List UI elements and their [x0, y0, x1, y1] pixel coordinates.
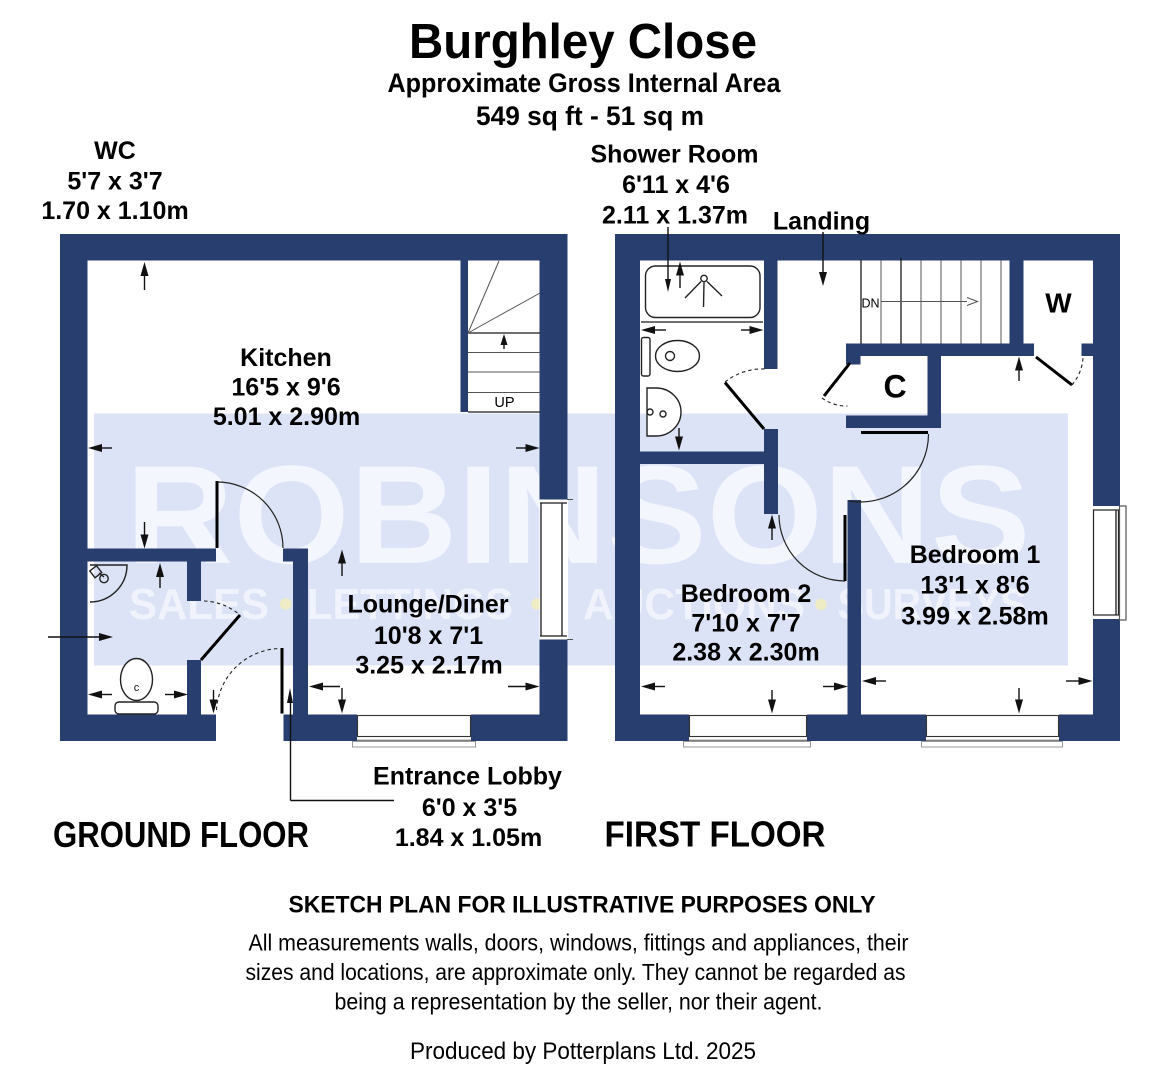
svg-text:3.99 x 2.58m: 3.99 x 2.58m — [901, 603, 1048, 631]
svg-text:GROUND FLOOR: GROUND FLOOR — [53, 814, 309, 855]
svg-text:Entrance Lobby: Entrance Lobby — [373, 763, 562, 791]
svg-text:1.70 x 1.10m: 1.70 x 1.10m — [41, 197, 188, 225]
svg-text:c: c — [134, 682, 140, 694]
svg-text:7'10 x 7'7: 7'10 x 7'7 — [691, 610, 800, 638]
svg-text:2.11 x 1.37m: 2.11 x 1.37m — [602, 202, 748, 230]
svg-text:being a representation by the: being a representation by the seller, no… — [335, 989, 823, 1015]
svg-text:FIRST FLOOR: FIRST FLOOR — [605, 814, 826, 855]
svg-text:Burghley Close: Burghley Close — [409, 15, 757, 69]
svg-text:1.84 x 1.05m: 1.84 x 1.05m — [395, 824, 542, 852]
svg-text:Landing: Landing — [773, 208, 870, 236]
svg-text:6'11 x 4'6: 6'11 x 4'6 — [622, 171, 730, 199]
svg-text:10'8 x 7'1: 10'8 x 7'1 — [374, 622, 483, 650]
svg-text:UP: UP — [494, 395, 514, 411]
svg-text:ROBINSONS: ROBINSONS — [126, 436, 1031, 593]
svg-text:3.25 x 2.17m: 3.25 x 2.17m — [355, 652, 502, 680]
svg-text:All measurements walls, doors,: All measurements walls, doors, windows, … — [249, 930, 909, 956]
svg-text:13'1 x 8'6: 13'1 x 8'6 — [920, 572, 1029, 600]
svg-text:6'0 x 3'5: 6'0 x 3'5 — [422, 794, 517, 822]
svg-text:5'7 x 3'7: 5'7 x 3'7 — [67, 168, 162, 196]
svg-text:5.01 x 2.90m: 5.01 x 2.90m — [213, 403, 360, 431]
svg-text:Produced by Potterplans Ltd. 2: Produced by Potterplans Ltd. 2025 — [410, 1038, 756, 1065]
svg-text:Approximate Gross Internal Are: Approximate Gross Internal Area — [388, 68, 782, 98]
svg-text:Kitchen: Kitchen — [240, 344, 332, 372]
svg-text:DN: DN — [862, 297, 880, 311]
svg-text:W: W — [1045, 288, 1072, 319]
svg-text:2.38 x 2.30m: 2.38 x 2.30m — [672, 639, 819, 667]
svg-text:Bedroom 2: Bedroom 2 — [681, 580, 812, 608]
svg-text:16'5 x 9'6: 16'5 x 9'6 — [231, 374, 340, 402]
svg-text:Lounge/Diner: Lounge/Diner — [347, 591, 508, 619]
svg-text:WC: WC — [94, 137, 136, 165]
svg-text:Bedroom 1: Bedroom 1 — [910, 541, 1041, 569]
svg-text:C: C — [883, 369, 906, 405]
svg-text:Shower Room: Shower Room — [590, 141, 758, 169]
svg-text:sizes and locations, are appro: sizes and locations, are approximate onl… — [246, 959, 906, 985]
svg-text:SKETCH PLAN FOR ILLUSTRATIVE P: SKETCH PLAN FOR ILLUSTRATIVE PURPOSES ON… — [289, 892, 876, 919]
svg-text:549 sq ft - 51 sq m: 549 sq ft - 51 sq m — [476, 101, 704, 131]
